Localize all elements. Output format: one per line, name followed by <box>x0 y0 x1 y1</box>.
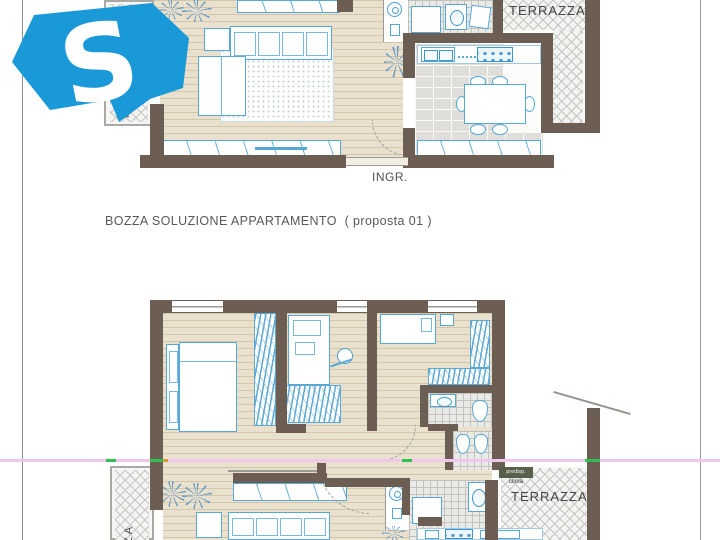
wall <box>545 123 600 133</box>
wall <box>150 462 163 510</box>
wall <box>402 487 410 515</box>
coffee-table <box>196 512 222 538</box>
nightstand <box>440 314 454 326</box>
plant-icon <box>382 526 406 540</box>
window <box>337 301 367 312</box>
wall <box>541 33 553 133</box>
terrace-right-label: TERRAZZA <box>509 3 593 19</box>
sink <box>430 394 456 407</box>
bathroom-fixture <box>469 5 492 30</box>
kitchen-sink-icon <box>421 47 455 62</box>
stove-icon <box>445 529 473 539</box>
wall <box>233 473 327 483</box>
laundry-basket-icon <box>392 508 402 519</box>
wall <box>403 43 415 78</box>
company-logo: S <box>2 0 197 128</box>
stove-icon <box>477 47 513 62</box>
fold-tick <box>402 459 412 462</box>
wall <box>150 300 163 462</box>
chair <box>492 124 508 135</box>
wall <box>367 313 377 431</box>
wardrobe <box>254 313 276 426</box>
wall <box>485 480 498 540</box>
chair <box>470 124 486 135</box>
counter-dots <box>458 56 476 58</box>
coffee-table <box>204 28 230 51</box>
clima-note-chip: predisp. <box>499 467 533 478</box>
fold-tick <box>106 459 116 462</box>
chaise-lounge <box>198 56 246 116</box>
wall <box>403 33 541 43</box>
washing-machine-icon <box>387 2 402 17</box>
wall <box>276 424 306 433</box>
terrace-right-label: TERRAZZA <box>511 489 595 505</box>
tv-icon <box>255 147 307 150</box>
single-bed <box>380 314 436 344</box>
plant-icon <box>182 483 212 509</box>
wardrobe <box>428 368 490 385</box>
fold-tick <box>585 459 600 462</box>
terrace-right-floor <box>553 30 583 123</box>
double-bed <box>179 342 237 432</box>
window <box>172 301 223 312</box>
wall <box>587 408 600 540</box>
wall <box>428 424 458 431</box>
laundry-basket-icon <box>390 24 400 36</box>
wall <box>317 463 326 475</box>
page-title: BOZZA SOLUZIONE APPARTAMENTO ( proposta … <box>105 214 535 232</box>
desk <box>288 315 330 385</box>
sofa <box>230 26 332 60</box>
wall <box>420 385 503 393</box>
wardrobe <box>470 320 490 368</box>
wall <box>420 385 428 427</box>
wall <box>408 155 554 168</box>
wall <box>445 428 453 470</box>
fold-tick <box>150 459 163 462</box>
wardrobe <box>283 385 341 423</box>
kitchen-item <box>425 530 439 539</box>
wall <box>140 155 346 168</box>
dining-table <box>464 84 526 124</box>
window <box>428 301 477 312</box>
terrace-left-label: TERRAZZA <box>123 476 141 540</box>
clima-note: clima <box>499 479 533 488</box>
wall <box>418 517 442 526</box>
wall <box>276 313 287 426</box>
sideboard <box>237 0 340 13</box>
scanned-floor-plan-page: TERRAZZA INGR. TERRAZZA <box>0 0 720 540</box>
wall <box>337 0 353 12</box>
wall <box>585 0 600 133</box>
shower-tray <box>411 6 441 33</box>
sofa <box>228 512 330 540</box>
sink <box>445 4 467 30</box>
wall <box>493 0 503 43</box>
entrance-threshold <box>346 157 408 166</box>
fold-tick <box>163 459 168 462</box>
double-bed-headboard <box>166 344 179 430</box>
wall <box>325 478 410 487</box>
wall-line <box>228 470 325 472</box>
entrance-label: INGR. <box>372 170 416 186</box>
